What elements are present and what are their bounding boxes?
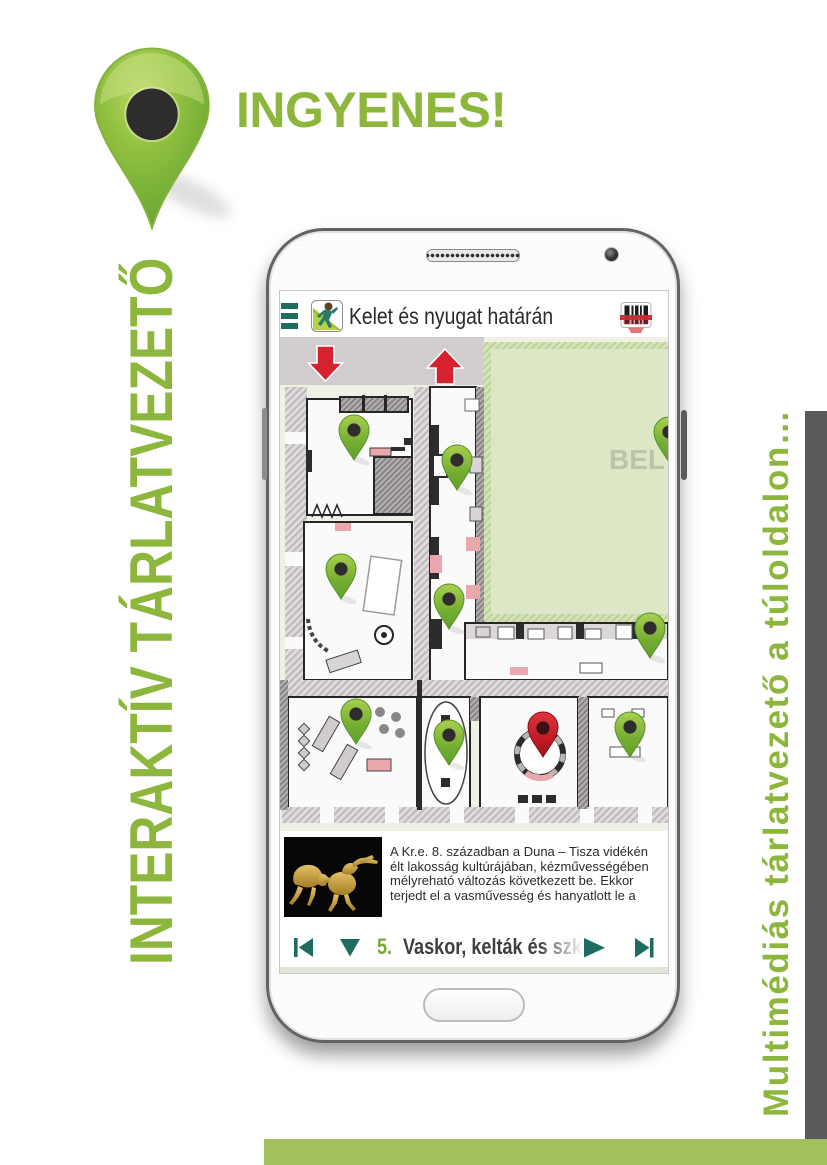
svg-text:BEL: BEL	[609, 444, 665, 475]
